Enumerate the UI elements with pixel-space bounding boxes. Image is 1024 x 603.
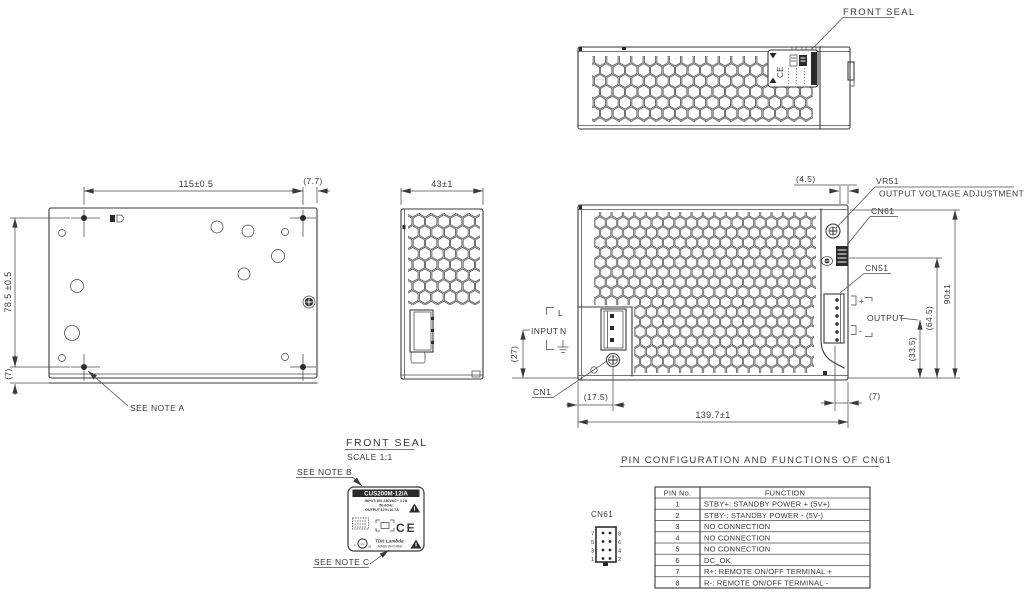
dim-height: 90±1 [942, 284, 952, 304]
table-rows: 1 STBY+: STANDBY POWER + (5V+) 2 STBY-: … [675, 500, 832, 588]
svg-text:R+: REMOTE ON/OFF TERMINAL +: R+: REMOTE ON/OFF TERMINAL + [704, 567, 833, 576]
svg-text:DC_OK: DC_OK [704, 556, 731, 565]
origin-text: MADE IN CHINA [378, 545, 403, 549]
front-seal-callout: FRONT SEAL [843, 7, 915, 18]
seal-output-rating: OUTPUT:12V=16.7A [365, 508, 399, 512]
ce-mark: CE [396, 521, 417, 535]
svg-text:6: 6 [675, 556, 679, 565]
dim-offset-top: (4.5) [796, 174, 815, 184]
output-minus: - [859, 326, 862, 336]
main-vent-pattern [594, 212, 816, 305]
output-label: OUTPUT [867, 313, 904, 323]
side-input-connector [410, 310, 434, 363]
ground-screw-icon [303, 296, 315, 308]
main-vent-pattern-lower [634, 305, 814, 373]
pin-function-table: PIN No. FUNCTION 1 STBY+: STANDBY POWER … [655, 487, 870, 588]
seal-title: FRONT SEAL [346, 437, 428, 449]
input-line-l: L [558, 308, 563, 318]
svg-text:8: 8 [618, 532, 621, 538]
technical-drawing-page: CE FRONT SEAL [0, 0, 1024, 603]
seal-scale: SCALE 1:1 [347, 452, 393, 462]
svg-text:3: 3 [591, 549, 594, 555]
input-label: INPUT [531, 326, 559, 336]
dim-edge-offset: (7) [869, 391, 881, 401]
dim-length: 139.7±1 [695, 410, 730, 420]
pin-configuration-section: PIN CONFIGURATION AND FUNCTIONS OF CN61 … [591, 455, 892, 588]
svg-text:6: 6 [618, 540, 621, 546]
cn51-callout: CN51 [865, 263, 888, 273]
bottom-view: 115±0.5 (7.7) 78.5 ±0.5 (7) SEE NOTE A [3, 176, 330, 413]
seal-frequency: 50-60Hz [379, 504, 393, 508]
drawing-canvas: CE FRONT SEAL [0, 0, 1024, 603]
svg-text:R-: REMOTE ON/OFF TERMINAL -: R-: REMOTE ON/OFF TERMINAL - [704, 578, 829, 587]
top-connector-tab [848, 62, 854, 80]
cn51-connector [824, 294, 844, 343]
chassis-holes [59, 221, 289, 362]
dim-output-height: (33.5) [907, 337, 917, 362]
vr51-description: OUTPUT VOLTAGE ADJUSTMENT [879, 189, 1024, 199]
col-header-function: FUNCTION [765, 489, 805, 498]
dim-offset: (7.7) [303, 176, 322, 186]
dim-cn61-height: (64.5) [924, 306, 934, 331]
output-annotation: + - OUTPUT [851, 296, 918, 337]
svg-text:3: 3 [675, 522, 679, 531]
dim-height: 78.5 ±0.5 [3, 271, 13, 312]
side-vent-pattern [408, 213, 480, 305]
svg-text:4: 4 [618, 549, 621, 555]
svg-text:5: 5 [675, 545, 679, 554]
svg-text:1: 1 [591, 557, 594, 563]
note-c: SEE NOTE C [314, 557, 369, 567]
dim-depth: 43±1 [431, 179, 453, 189]
dim-width: 115±0.5 [179, 179, 214, 189]
col-header-pin: PIN No. [664, 489, 692, 498]
pin-table-title: PIN CONFIGURATION AND FUNCTIONS OF CN61 [621, 455, 892, 466]
svg-text:7: 7 [591, 532, 594, 538]
svg-text:NO CONNECTION: NO CONNECTION [704, 545, 770, 554]
cn61-pin-diagram: CN61 7 5 3 1 8 6 4 2 [591, 510, 621, 566]
cn61-connector [836, 246, 848, 266]
top-view: CE FRONT SEAL [578, 7, 915, 129]
main-view: VR51 OUTPUT VOLTAGE ADJUSTMENT CN61 CN51… [509, 174, 1024, 428]
svg-text:STBY+: STANDBY POWER + (5V+): STBY+: STANDBY POWER + (5V+) [704, 500, 830, 509]
bottom-view-dimensions [10, 187, 330, 406]
svg-text:UL: UL [360, 542, 364, 546]
svg-text:8: 8 [675, 578, 679, 587]
note-a: SEE NOTE A [130, 403, 185, 413]
input-annotation: L INPUT N [531, 308, 569, 353]
cn1-input-connector [601, 309, 626, 350]
cn1-screw-icon [607, 354, 620, 367]
panel-screw-icon [822, 257, 833, 266]
dim-flange: (7) [3, 368, 13, 380]
seal-label: CUS200M-12/A INPUT:100-240VAC~ 3.2A 50-6… [348, 487, 424, 551]
front-seal-mini-label: CE [768, 50, 818, 87]
bottom-view-outline [49, 208, 317, 378]
ce-mark-rotated: CE [776, 66, 785, 78]
side-view-dimensions [401, 188, 483, 205]
svg-text:STBY-: STANDBY POWER - (5V-): STBY-: STANDBY POWER - (5V-) [704, 511, 824, 520]
dim-input-height: (27) [509, 346, 519, 363]
brand-logo: TDK·Lambda [375, 539, 404, 544]
svg-text:2: 2 [675, 511, 679, 520]
svg-text:2: 2 [618, 557, 621, 563]
seal-input-rating: INPUT:100-240VAC~ 3.2A [365, 499, 408, 503]
cn61-callout: CN61 [871, 206, 894, 216]
ground-symbol-icon [558, 340, 569, 353]
svg-text:us: us [368, 545, 372, 549]
svg-text:1: 1 [675, 500, 679, 509]
seal-model: CUS200M-12/A [364, 491, 408, 498]
svg-text:NO CONNECTION: NO CONNECTION [704, 522, 770, 531]
svg-text:4: 4 [675, 533, 679, 542]
output-plus: + [859, 296, 864, 306]
side-view: 43±1 [401, 179, 483, 379]
dim-cn1-offset: (17.5) [584, 392, 609, 402]
model-bar-rotated [811, 52, 817, 85]
input-line-n: N [560, 326, 567, 336]
svg-text:7: 7 [675, 567, 679, 576]
svg-text:5: 5 [591, 540, 594, 546]
cn1-callout: CN1 [533, 387, 551, 397]
vr51-callout: VR51 [876, 176, 899, 186]
note-b: SEE NOTE B [297, 467, 352, 477]
cn61-diagram-label: CN61 [591, 510, 613, 519]
front-seal-detail: FRONT SEAL SCALE 1:1 SEE NOTE B CUS200M-… [296, 437, 428, 568]
svg-text:NO CONNECTION: NO CONNECTION [704, 533, 770, 542]
mounting-hole-marks [71, 210, 316, 381]
